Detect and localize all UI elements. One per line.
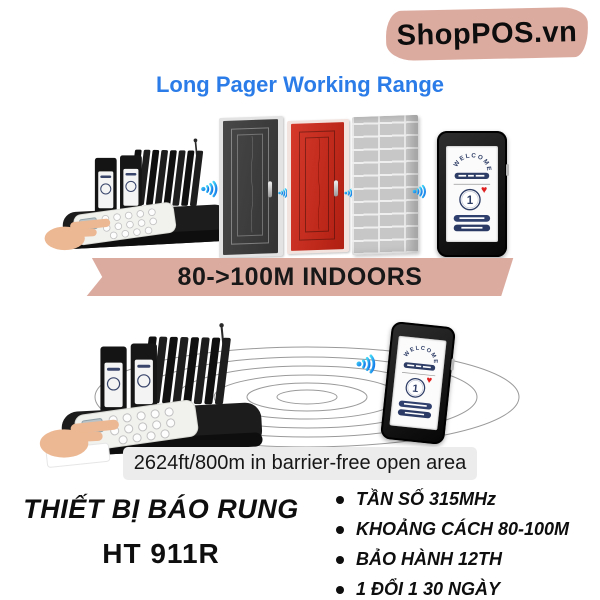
- pager-screen: WELCOME 1 ♥: [390, 336, 446, 430]
- indoor-range-ribbon: 80->100M INDOORS: [85, 258, 515, 296]
- spec-item-range: KHOẢNG CÁCH 80-100M: [336, 519, 592, 540]
- wifi-signal-icon: [354, 347, 384, 381]
- indoor-range-text: 80->100M INDOORS: [178, 263, 423, 292]
- welcome-arc-text: WELCOME: [403, 344, 440, 366]
- svg-text:WELCOME: WELCOME: [453, 152, 493, 172]
- brand-logo: ShopPOS.vn: [385, 7, 588, 61]
- pager-device: WELCOME 1 ♥: [437, 131, 507, 257]
- page-title: Long Pager Working Range: [0, 72, 600, 98]
- bullet-icon: [336, 586, 344, 594]
- spec-list: TẦN SỐ 315MHz KHOẢNG CÁCH 80-100M BẢO HÀ…: [336, 489, 592, 600]
- gray-door: [219, 116, 283, 258]
- door-handle: [268, 181, 272, 197]
- bullet-icon: [336, 556, 344, 564]
- brand-logo-text: ShopPOS.vn: [396, 16, 577, 53]
- heart-icon: ♥: [426, 375, 433, 387]
- open-area-range-banner: 2624ft/800m in barrier-free open area: [123, 447, 477, 480]
- spec-item-frequency: TẦN SỐ 315MHz: [336, 489, 592, 510]
- open-area-range-text: 2624ft/800m in barrier-free open area: [134, 452, 466, 475]
- pager-screen: WELCOME 1 ♥: [446, 146, 498, 242]
- product-name-block: THIẾT BỊ BÁO RUNG HT 911R: [0, 494, 322, 570]
- brick-wall: [352, 115, 418, 255]
- welcome-arc-text: WELCOME: [453, 152, 493, 172]
- wifi-signal-icon: [411, 179, 432, 204]
- bullet-icon: [336, 496, 344, 504]
- pager-side-button: [506, 164, 509, 176]
- spec-item-exchange: 1 ĐỔI 1 30 NGÀY: [336, 579, 592, 600]
- product-name-line1: THIẾT BỊ BÁO RUNG: [0, 494, 322, 525]
- red-door: [287, 119, 349, 254]
- product-model: HT 911R: [0, 538, 322, 570]
- product-infographic: ShopPOS.vn Long Pager Working Range: [0, 0, 600, 600]
- door-handle: [334, 181, 338, 197]
- spec-item-warranty: BẢO HÀNH 12TH: [336, 549, 592, 570]
- bullet-icon: [336, 526, 344, 534]
- pager-device: WELCOME 1 ♥: [380, 321, 456, 445]
- svg-text:WELCOME: WELCOME: [403, 344, 440, 366]
- pager-number: 1: [467, 195, 474, 207]
- heart-icon: ♥: [481, 184, 487, 196]
